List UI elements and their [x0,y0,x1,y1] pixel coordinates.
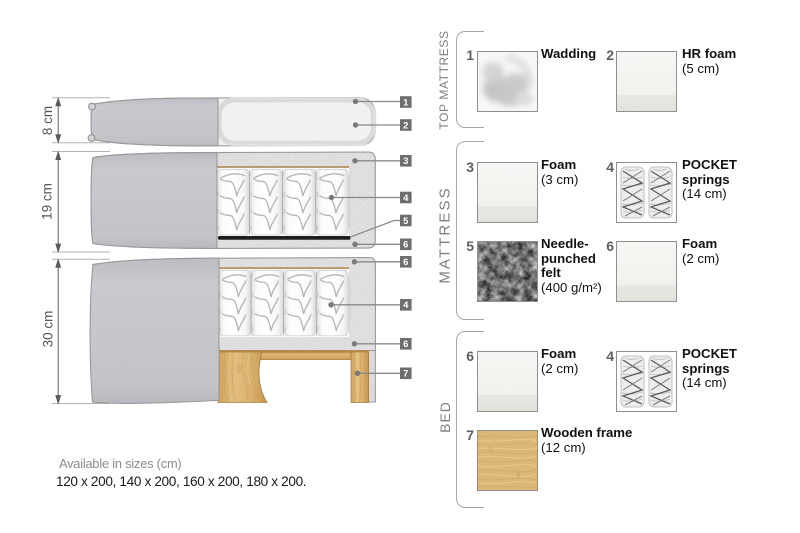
svg-text:3: 3 [403,156,408,167]
svg-text:1: 1 [403,97,409,108]
svg-text:4: 4 [403,300,409,311]
svg-text:8 cm: 8 cm [40,106,55,135]
svg-text:2: 2 [403,120,408,131]
svg-text:4: 4 [403,193,409,204]
svg-text:30 cm: 30 cm [41,311,56,348]
svg-text:6: 6 [403,240,408,251]
svg-text:6: 6 [403,339,408,350]
svg-text:7: 7 [403,369,408,380]
svg-text:5: 5 [403,216,409,227]
svg-text:19 cm: 19 cm [40,183,55,220]
svg-text:6: 6 [403,257,408,268]
